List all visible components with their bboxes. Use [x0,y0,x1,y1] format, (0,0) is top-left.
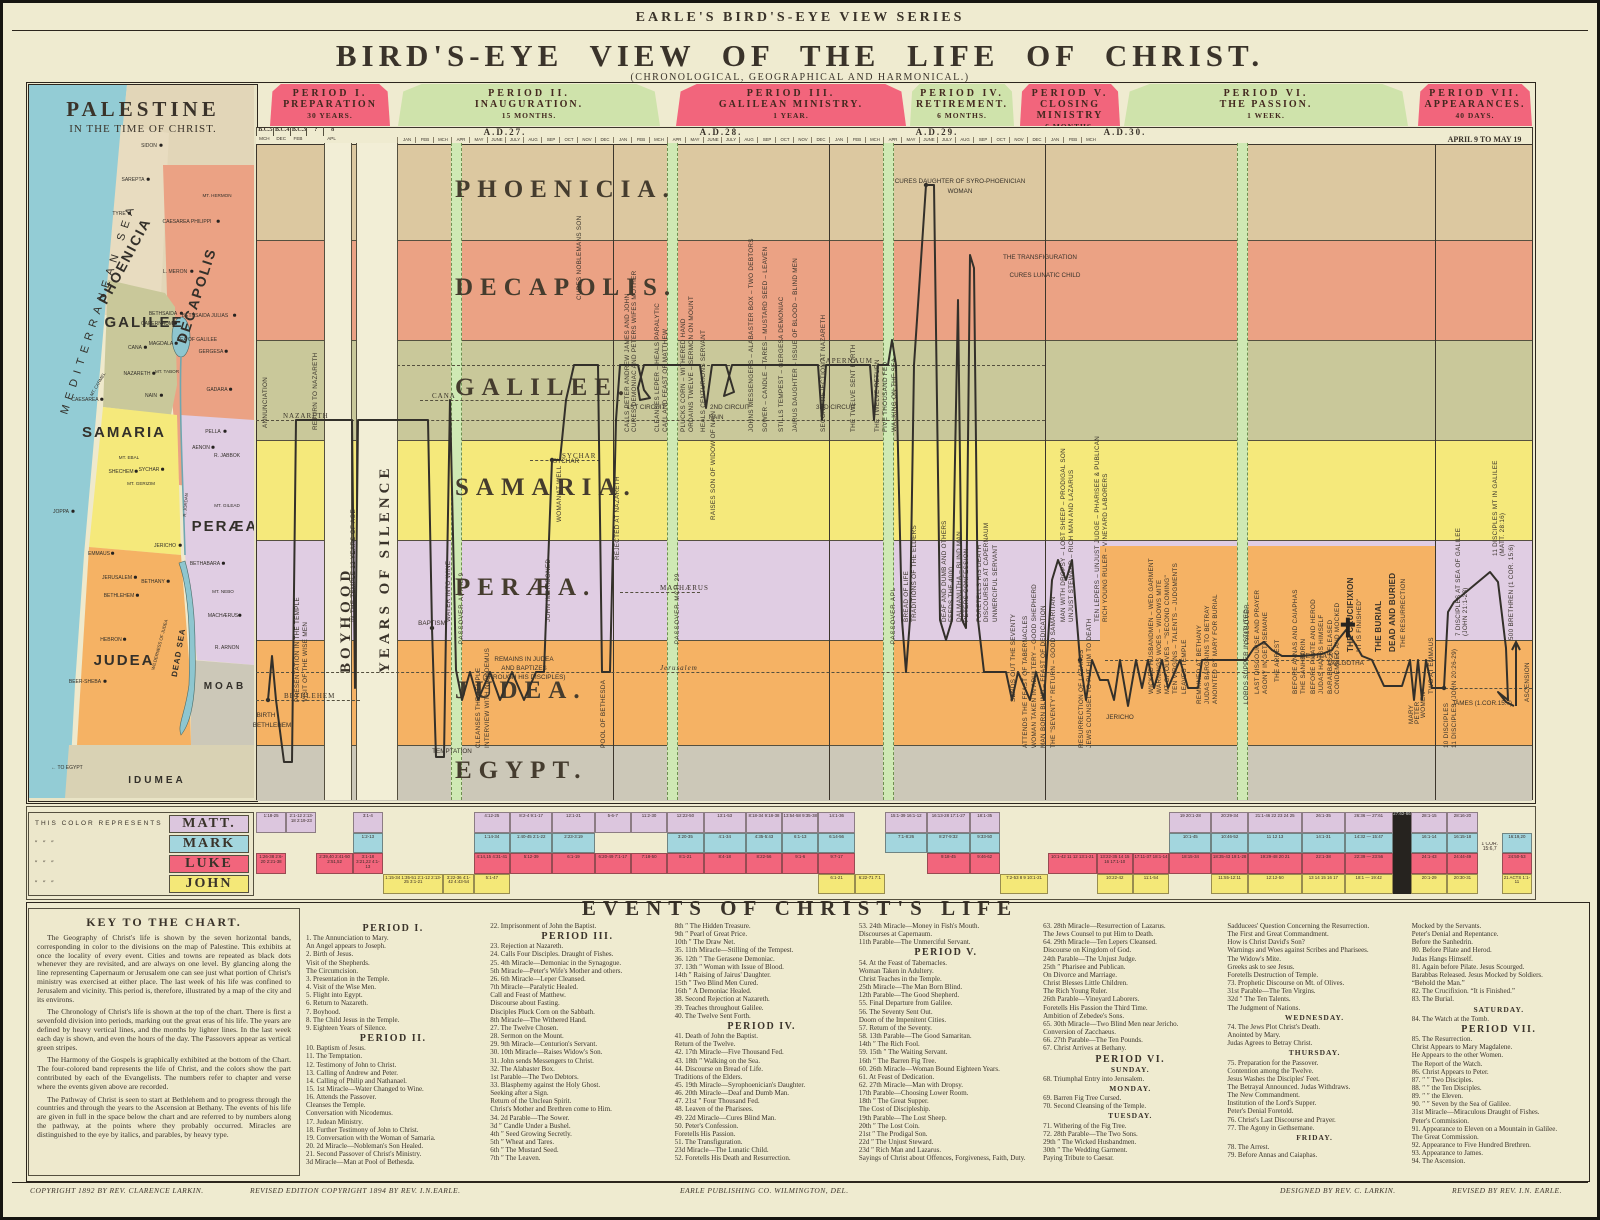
events-item: Judas Agrees to Betray Christ. [1227,1039,1401,1047]
harmony-segment: 6:1-21 [818,874,854,895]
event-label-v: ATTENDS THE FEAST OF TABERNACLES [1022,615,1029,748]
period-tab: PERIOD I.PREPARATION30 YEARS. [270,84,390,126]
events-item: 51. The Transfiguration. [675,1138,849,1146]
event-label-v: SOWER – CANDLE – TARES – MUSTARD SEED – … [762,247,769,433]
map-label: PERÆA [192,518,254,535]
harmony-segment: 8:27-9:32 [927,833,969,854]
harmony-segment: 10:1-42 11 12 13:1-21 [1048,853,1096,874]
events-item: 17th Parable—Choosing Lower Room. [859,1089,1033,1097]
events-item: 72. 28th Parable—The Two Sons. [1043,1130,1217,1138]
map-label: NAZARETH [124,371,151,377]
harmony-segment: 11:1-54 [1133,874,1169,895]
harmony-segment: 13 14 15 16 17 [1302,874,1344,895]
events-item: 31st Miracle—Miraculous Draught of Fishe… [1412,1108,1586,1116]
events-item: Contention among the Twelve. [1227,1067,1401,1075]
map-label: CANA [128,345,143,351]
events-item: An Angel appears to Joseph. [306,942,480,950]
bc-month [306,136,323,143]
events-item: Barabbas Released. Jesus Mocked by Soldi… [1412,971,1586,979]
events-item: 23d Miracle—The Lunatic Child. [675,1146,849,1154]
map-label: MT. NEBO [212,589,234,594]
period-name: PREPARATION [270,99,390,110]
events-item: 5th ″ Wheat and Tares. [490,1138,664,1146]
harmony-segment: 16:19,20 [1502,833,1532,854]
event-label-v: THE "SEVENTY" RETURN – GOOD SAMARITAN [1050,596,1057,748]
events-item: 92. Appearance to Five Hundred Brethren. [1412,1141,1586,1149]
events-item: 54. At the Feast of Tabernacles. [859,959,1033,967]
city-line [397,365,1045,366]
event-label-v: 10 DISCIPLES [1443,703,1450,748]
year-line [613,127,614,800]
harmony-segment: 17:11-37 18:1-14 [1133,853,1169,874]
events-item: 19. Conversation with the Woman of Samar… [306,1134,480,1142]
events-item: 26. 6th Miracle—Leper Cleansed. [490,975,664,983]
event-label-v: LORDS SUPPER INSTITUTED [1243,609,1250,704]
events-item: Foretells His Passion. [675,1130,849,1138]
page-title: BIRD'S-EYE VIEW OF THE LIFE OF CHRIST. [0,38,1600,74]
series-title: EARLE'S BIRD'S-EYE VIEW SERIES [0,10,1600,26]
events-item: Peter's Denial and Repentance. [1412,930,1586,938]
period-duration: 40 DAYS. [1418,111,1532,120]
month-label: OCT [775,137,794,144]
events-item: 69. Barren Fig Tree Cursed. [1043,1094,1217,1102]
events-period-header: PERIOD I. [306,925,480,933]
event-label-v: RICH YOUNG RULER – VINEYARD LABORERS [1102,473,1109,622]
event-label-v: MAN BORN BLIND – FEAST OF DEDICATION [1040,605,1047,748]
events-day-header: THURSDAY. [1227,1049,1401,1057]
events-item: 19th Parable—The Lost Sheep. [859,1114,1033,1122]
harmony-key-text: ″ ″ ″ [35,860,56,867]
event-label-v: PETERS CONFESSION [963,548,970,622]
harmony-segment: 12:1-21 [552,812,594,833]
events-item: 4. Visit of the Wise Men. [306,983,480,991]
footer-credit: EARLE PUBLISHING CO. WILMINGTON, DEL. [680,1186,849,1195]
events-item: Judas Hangs Himself. [1412,955,1586,963]
harmony-key-row: THIS COLOR REPRESENTSMATT. [29,814,253,834]
events-item: 52. Foretells His Death and Resurrection… [675,1154,849,1162]
events-item: 11. The Temptation. [306,1052,480,1060]
events-item: 17. Judean Ministry. [306,1118,480,1126]
map-label: GALILEE [104,314,183,331]
events-item: 10. Baptism of Jesus. [306,1044,480,1052]
map-label: NAIN [145,393,157,399]
event-label-h: BETHLEHEM [253,722,292,729]
footer-credit: DESIGNED BY REV. C. LARKIN. [1280,1186,1396,1195]
harmony-segment: 28:16-20 [1447,812,1477,833]
event-label-v: WOMAN AT WELL [556,466,563,523]
band-label: EGYPT. [455,757,588,785]
event-label-v: 11 DISCIPLES MT IN GALILEE [1492,460,1499,556]
event-label-v: AGONY IN GETHSEMANE [1262,612,1269,694]
events-item: 42. 17th Miracle—Five Thousand Fed. [675,1048,849,1056]
events-item: 7th ″ The Leaven. [490,1154,664,1162]
events-item: 94. The Ascension. [1412,1157,1586,1165]
period-duration: 30 YEARS. [270,111,390,120]
harmony-band: 1:18-251:26-38 2:6-20 2:21-382:1-12 2:13… [256,812,1532,894]
events-item: 87. ″ ″ Two Disciples. [1412,1076,1586,1084]
harmony-segment: 6:20-49 7:1-17 [595,853,631,874]
event-label-h: AND BAPTIZES [501,665,547,672]
month-label: MCH [433,137,452,144]
harmony-key-text: ″ ″ ″ [35,840,56,847]
events-item: 75. Preparation for the Passover. [1227,1059,1401,1067]
harmony-segment: 24:50-53 [1502,853,1532,874]
period-number: PERIOD VII. [1418,88,1532,99]
event-label-v: WOMAN TAKEN IN ADULTERY – GOOD SHEPHERD [1031,584,1038,748]
map-subtitle: IN THE TIME OF CHRIST. [29,123,257,135]
events-item: 20. 2d Miracle—Nobleman's Son Healed. [306,1142,480,1150]
events-item: 1st Parable—The Two Debtors. [490,1073,664,1081]
gospel-label-matt: MATT. [169,815,249,833]
month-label: JUNE [919,137,938,144]
events-item: Return of the Unclean Spirit. [490,1097,664,1105]
event-label-v: ANOINTED BY MARY FOR BURIAL [1212,594,1219,704]
events-item: 74. The Jews Plot Christ's Death. [1227,1023,1401,1031]
event-label-v: TWO AT EMMAUS [1428,637,1435,694]
events-item: 66. 27th Parable—The Ten Pounds. [1043,1036,1217,1044]
events-item: Greeks ask to see Jesus. [1227,963,1401,971]
harmony-tomb-block: 27:62-66 [1393,812,1411,894]
harmony-segment: 6:1-13 [782,833,818,854]
events-item: Sayings of Christ about Offences, Forgiv… [859,1154,1033,1162]
map-label: GADARA [206,387,228,393]
harmony-segment: 16:13-28 17:1-27 [927,812,969,833]
harmony-segment: 12:12-50 [1248,874,1302,895]
event-label-v: THE TWELVE RETURN [874,359,881,432]
month-label: JAN [613,137,632,144]
event-label-v: 7 DISCIPLES AT SEA OF GALILEE [1455,528,1462,636]
map-label: MT. TABOR [155,369,180,374]
events-item: 21. Second Passover of Christ's Ministry… [306,1150,480,1158]
period-tab: PERIOD VI.THE PASSION.1 WEEK. [1124,84,1408,126]
harmony-segment: 26:36 — 27:61 [1345,812,1393,833]
month-label: DEC [595,137,614,144]
events-item: 71. Withering of the Fig Tree. [1043,1122,1217,1130]
events-item: 24. Calls Four Disciples. Draught of Fis… [490,950,664,958]
harmony-segment: 15:1-39 16:1-12 [885,812,927,833]
events-item: 1. The Annunciation to Mary. [306,934,480,942]
event-label-h: BIRTH [257,712,276,719]
period-number: PERIOD III. [676,88,906,99]
events-item: 31. John sends Messengers to Christ. [490,1057,664,1065]
city-line [256,420,1045,421]
events-item: 7th Miracle—Paralytic Healed. [490,983,664,991]
month-label: AUG [955,137,974,144]
event-label-v: (MATT. 28:16) [1499,513,1506,556]
events-item: 93. Appearance to James. [1412,1149,1586,1157]
map-label: BETHLEHEM [104,593,135,599]
bc-month: FEB [290,136,307,143]
events-item: Conversion of Zacchaeus. [1043,1028,1217,1036]
harmony-key-row: ″ ″ ″MARK [29,834,253,854]
events-item: 23. Rejection at Nazareth. [490,942,664,950]
events-item: Peter's Commission. [1412,1117,1586,1125]
events-item: 57. Return of the Seventy. [859,1024,1033,1032]
event-label-v: FIVE THOUSAND FED [882,362,889,432]
harmony-segment: 24:1-43 [1411,853,1447,874]
events-item: 2. Birth of Jesus. [306,950,480,958]
events-item: 8th Miracle—The Withered Hand. [490,1016,664,1024]
map-label: MT. EBAL [119,455,140,460]
map-label: SIDON [141,143,157,149]
events-item: Christ Teaches in the Temple. [859,975,1033,983]
period-duration: 1 WEEK. [1124,111,1408,120]
period-tab: PERIOD VII.APPEARANCES.40 DAYS. [1418,84,1532,126]
events-item: “Behold the Man.” [1412,979,1586,987]
region-moab [191,660,254,745]
month-label: FEB [1063,137,1082,144]
events-item: 14. Calling of Philip and Nathanael. [306,1077,480,1085]
event-label-v: SECOND REJECTION AT NAZARETH [820,315,827,432]
event-label-v: JOHNS MESSENGERS – ALABASTER BOX – TWO D… [748,238,755,432]
map-label: JERUSALEM [102,575,132,581]
event-label-v: MAN WITH DROPSY – LOST SHEEP – PRODIGAL … [1060,448,1067,622]
events-item: 45. 19th Miracle—Syrophoenician's Daught… [675,1081,849,1089]
event-label-v: RESURRECTION OF LAZARUS [1078,649,1085,748]
event-label-v: JUDAS HANGS HIMSELF [1318,614,1325,694]
map-label: PELLA [205,429,221,435]
event-label-v: CALL AND FEAST OF MATTHEW [662,329,669,432]
events-item: Discourse about Fasting. [490,999,664,1007]
event-label-v: THE BURIAL [1374,601,1383,652]
events-item: 40. The Twelve Sent Forth. [675,1012,849,1020]
harmony-segment: 9:7-17 [818,853,854,874]
map-label: MOAB [204,681,247,692]
event-label-h: (THROUGH HIS DISCIPLES) [483,674,566,681]
band-label: GALILEE. [455,374,631,402]
period-duration: 6 MONTHS. [910,111,1014,120]
event-label-v: FORETELLS HIS DEATH [976,545,983,622]
band-label: PHOENICIA. [455,176,676,204]
harmony-segment: 22:39 — 23:56 [1345,853,1393,874]
event-label-v: CLEANSES THE TEMPLE [475,668,482,748]
events-item: 18th ″ The Great Supper. [859,1097,1033,1105]
events-item: 33. Blasphemy against the Holy Ghost. [490,1081,664,1089]
month-label: NOV [577,137,596,144]
harmony-key-row: ″ ″ ″LUKE [29,854,253,874]
key-paragraph: The Chronology of Christ's life is shown… [37,1008,291,1052]
event-label-v: STILLS TEMPEST – GERGESA DEMONIAC [778,296,785,432]
events-item: Foretells Destruction of Temple. [1227,971,1401,979]
events-item: 22. Imprisonment of John the Baptist. [490,922,664,930]
event-label-v: REMAINED AT BETHANY [1196,625,1203,704]
events-item: 31st Parable—The Ten Virgins. [1227,987,1401,995]
event-label-h: CURES DAUGHTER OF SYRO-PHOENICIAN [895,178,1026,185]
events-item: Christ Appears to Mary Magdalene. [1412,1043,1586,1051]
events-item: Sadducees' Question Concerning the Resur… [1227,922,1401,930]
events-item: 85. The Resurrection. [1412,1035,1586,1043]
harmony-segment: 4:35-5:43 [746,833,782,854]
events-item: 79. Before Annas and Caiaphas. [1227,1151,1401,1159]
harmony-segment: 10:46-52 [1211,833,1247,854]
events-item: 6. Return to Nazareth. [306,999,480,1007]
map-label: R. JABBOK [214,453,241,459]
harmony-segment: 1:26-38 2:6-20 2:21-38 [256,853,286,874]
event-label-v: DEAD AND BURIED [1388,573,1397,652]
harmony-segment: 20:29-34 [1211,812,1247,833]
event-label-v: JOHN IMPRISONED [545,559,552,622]
footer-credit: REVISED EDITION COPYRIGHT 1894 BY REV. I… [250,1186,460,1195]
harmony-segment: 4:12-25 [474,812,510,833]
events-item: 39. Teaches throughout Galilee. [675,1004,849,1012]
events-item: 7. Boyhood. [306,1008,480,1016]
band-label: SAMARIA. [455,474,637,502]
events-item: The Jews Counsel to put Him to Death. [1043,930,1217,938]
events-item: 30th ″ The Wedding Garment. [1043,1146,1217,1154]
events-item: 16. Attends the Passover. [306,1093,480,1101]
events-item: 18. Further Testimony of John to Christ. [306,1126,480,1134]
event-label-v: THE ARREST [1274,639,1281,682]
column-years-of-silence: YEARS OF SILENCE [356,143,398,800]
harmony-segment: 1:40-45 2:1-22 [510,833,552,854]
palestine-map-svg: SIDONSAREPTATYRECAESAREA PHILIPPIMT. HER… [29,85,254,798]
bc-year: B.C.4 [273,127,291,136]
event-label-h: WOMAN [948,188,973,195]
events-item: The Betrayal Announced. Judas Withdraws. [1227,1083,1401,1091]
events-item: 27. The Twelve Chosen. [490,1024,664,1032]
events-item: 37. 13th ″ Woman with Issue of Blood. [675,963,849,971]
passover-stripe: PASSOVER MCH 29 [667,143,678,800]
events-item: 25th ″ Pharisee and Publican. [1043,963,1217,971]
city-line-label: CAPERNAUM [820,357,873,365]
harmony-segment: 7:1-8:26 [885,833,927,854]
city-line [620,592,700,593]
map-label: BETHABARA [190,561,221,567]
year-label: A.D.28. [613,127,829,137]
event-label-v: ASCENSION [1524,662,1531,702]
events-item: The First and Great Commandment. [1227,930,1401,938]
harmony-segment: 13:22-35 14 15 16 17:1-10 [1097,853,1133,874]
map-label: SAREPTA [122,177,146,183]
band-phoenicia [256,143,1532,241]
harmony-segment: 11 12 13 [1248,833,1302,854]
events-item: 3. Presentation in the Temple. [306,975,480,983]
harmony-segment: 14:32 — 15:47 [1345,833,1393,854]
harmony-segment: 5:12-39 [510,853,552,874]
events-item: 44. Discourse on Bread of Life. [675,1065,849,1073]
events-item: 21st ″ The Prodigal Son. [859,1130,1033,1138]
events-item: Ambition of Zebedee's Sons. [1043,1012,1217,1020]
events-item: 47. 21st ″ Four Thousand Fed. [675,1097,849,1105]
year-line [1435,127,1436,800]
month-label: SEP [973,137,992,144]
event-label-h: JERICHO [1106,714,1134,721]
period-number: PERIOD V. [1020,88,1120,99]
events-item: 3d ″ Candle Under a Bushel. [490,1122,664,1130]
period-name: GALILEAN MINISTRY. [676,99,906,110]
harmony-segment: 3:1-18 3:21,22 4:1-13 [353,853,383,874]
harmony-segment: 2:39,40 2:41-50 2:51,52 [316,853,352,874]
period-tab: PERIOD II.INAUGURATION.15 MONTHS. [398,84,660,126]
events-item: 78. The Arrest. [1227,1143,1401,1151]
event-label-v: ORDAINS TWELVE – SERMON ON MOUNT [688,296,695,432]
event-label-v: THE RESURRECTION [1400,578,1407,648]
events-item: Conversation with Nicodemus. [306,1109,480,1117]
events-item: 9. Eighteen Years of Silence. [306,1024,480,1032]
event-label-v: RETURN TO NAZARETH [312,352,319,430]
events-item: The Widow's Mite. [1227,955,1401,963]
events-item: 81. Again before Pilate. Jesus Scourged. [1412,963,1586,971]
harmony-segment: 8:18-34 9:18-38 [746,812,782,833]
events-item: 15th ″ Two Blind Men Cured. [675,979,849,987]
event-label-v: VISIT OF THE WISE MEN [302,622,309,702]
events-item: 58. 13th Parable—The Good Samaritan. [859,1032,1033,1040]
harmony-segment: 5:1-47 [474,874,510,895]
events-item: Visit of the Shepherds. [306,959,480,967]
events-item: 22d ″ The Unjust Steward. [859,1138,1033,1146]
harmony-segment: 20:1-29 [1411,874,1447,895]
harmony-segment: 4:1-34 [704,833,746,854]
events-period-header: PERIOD III. [490,933,664,941]
band-label: DECAPOLIS. [455,274,677,302]
events-item: The Report of the Watch. [1412,1060,1586,1068]
harmony-segment: 6:1-19 [552,853,594,874]
harmony-segment: 19 20:1-28 [1169,812,1211,833]
events-item: Doom of the Impenitent Cities. [859,1016,1033,1024]
events-item: 36. 12th ″ The Gerasene Demoniac. [675,955,849,963]
events-item: The Circumcision. [306,967,480,975]
event-label-v: UNJUST STEWARD – RICH MAN AND LAZARUS [1068,470,1075,622]
events-item: 77. The Agony in Gethsemane. [1227,1124,1401,1132]
events-item: 24th Parable—The Unjust Judge. [1043,955,1217,963]
events-item: 28. Sermon on the Mount. [490,1032,664,1040]
events-item: 48. Leaven of the Pharisees. [675,1105,849,1113]
events-item: Cleanses the Temple. [306,1101,480,1109]
events-item: 3d Miracle—Man at Pool of Bethesda. [306,1158,480,1166]
event-label-v: WALKING ON THE SEA [891,358,898,432]
events-item: 76. Christ's Last Discourse and Prayer. [1227,1116,1401,1124]
bc-year: B.C.5 [256,127,274,136]
events-item: Christ Blesses Little Children. [1043,979,1217,987]
harmony-segment: 11:2-30 [631,812,667,833]
events-item: Christ's Mother and Brethren come to Him… [490,1105,664,1113]
events-item: Discourse on Kingdom of God. [1043,946,1217,954]
month-label: OCT [991,137,1010,144]
event-label-v: ANNUNCIATION [262,377,269,428]
harmony-segment: 8:2-4 9:1-17 [510,812,552,833]
map-label: CAESAREA PHILIPPI [163,219,212,225]
events-day-header: WEDNESDAY. [1227,1014,1401,1022]
events-item: 80. Before Pilate and Herod. [1412,946,1586,954]
events-item: 29. 9th Miracle—Centurion's Servant. [490,1040,664,1048]
gospel-label-luke: LUKE [169,855,249,873]
map-title: PALESTINE [29,97,257,122]
events-item: He Appears to the other Women. [1412,1051,1586,1059]
harmony-segment: 8:22-56 [746,853,782,874]
events-item: 23d ″ Rich Man and Lazarus. [859,1146,1033,1154]
event-label-v: (JOHN 21:1-23) [1462,587,1469,636]
event-label-v: PLUCKS CORN – WITHERED HAND [680,318,687,432]
period-name: THE PASSION. [1124,99,1408,110]
events-day-header: SUNDAY. [1043,1066,1217,1074]
key-to-chart-title: KEY TO THE CHART. [37,915,291,930]
harmony-segment: 10:1-45 [1169,833,1211,854]
year-line [829,127,830,800]
events-item: The Cost of Discipleship. [859,1105,1033,1113]
events-item: 16th ″ A Demoniac Healed. [675,987,849,995]
event-label-v: MT OF OLIVES – "SECOND COMING" [1164,575,1171,694]
harmony-segment: 8:4-18 [704,853,746,874]
event-label-v: BEFORE PILATE AND HEROD [1310,599,1317,694]
city-line-label: BETHLEHEM [284,692,335,700]
rule-top [12,30,1588,31]
map-label: MT. HERMON [202,193,231,198]
map-label: BETHANY [141,579,165,585]
period-number: PERIOD II. [398,88,660,99]
map-label: JOPPA [53,509,70,515]
month-label: JULY [721,137,740,144]
city-line [420,400,620,401]
